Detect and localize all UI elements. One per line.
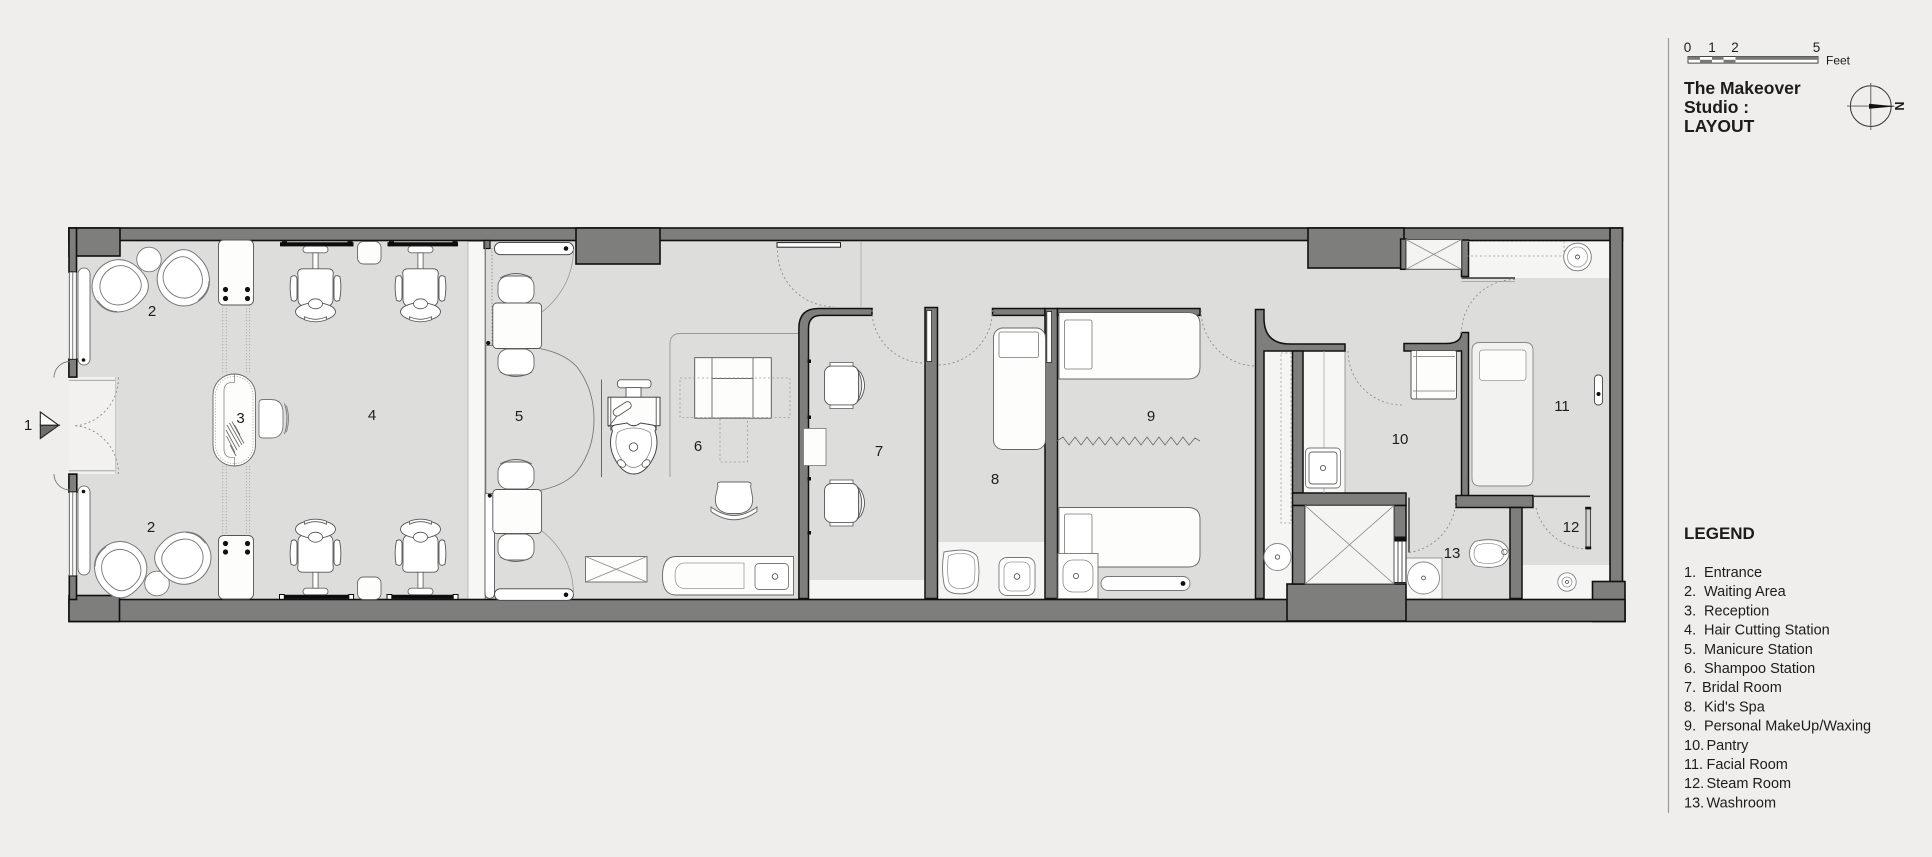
svg-text:1: 1: [1708, 40, 1716, 55]
svg-text:2: 2: [147, 519, 155, 536]
svg-text:Steam Room: Steam Room: [1707, 776, 1792, 792]
svg-text:Facial Room: Facial Room: [1707, 757, 1788, 773]
svg-text:0: 0: [1684, 40, 1692, 55]
svg-text:1: 1: [24, 417, 32, 434]
svg-text:N: N: [1892, 101, 1906, 110]
svg-text:9.: 9.: [1684, 719, 1696, 735]
svg-text:Bridal Room: Bridal Room: [1702, 680, 1782, 696]
svg-text:5: 5: [515, 408, 523, 425]
svg-text:12: 12: [1563, 519, 1580, 536]
svg-text:2: 2: [1731, 40, 1739, 55]
svg-text:13: 13: [1444, 545, 1461, 562]
svg-text:3: 3: [236, 410, 244, 427]
svg-text:Shampoo Station: Shampoo Station: [1704, 661, 1815, 677]
svg-text:Studio :: Studio :: [1684, 97, 1749, 117]
svg-text:Hair Cutting Station: Hair Cutting Station: [1704, 623, 1830, 639]
svg-text:Personal MakeUp/Waxing: Personal MakeUp/Waxing: [1704, 719, 1871, 735]
svg-text:9: 9: [1147, 408, 1155, 425]
svg-text:6.: 6.: [1684, 661, 1696, 677]
svg-text:Entrance: Entrance: [1704, 565, 1762, 581]
svg-text:11.: 11.: [1684, 757, 1703, 773]
svg-text:4.: 4.: [1684, 623, 1696, 639]
svg-text:4: 4: [368, 407, 376, 424]
svg-text:2.: 2.: [1684, 584, 1696, 600]
svg-text:6: 6: [694, 438, 702, 455]
svg-text:5: 5: [1813, 40, 1821, 55]
svg-text:13.: 13.: [1684, 795, 1704, 811]
svg-text:Reception: Reception: [1704, 603, 1769, 619]
svg-text:The Makeover: The Makeover: [1684, 78, 1801, 98]
svg-text:Pantry: Pantry: [1707, 738, 1750, 754]
svg-text:11: 11: [1554, 398, 1570, 415]
svg-text:2: 2: [148, 303, 156, 320]
svg-text:Waiting Area: Waiting Area: [1704, 584, 1787, 600]
svg-text:Manicure Station: Manicure Station: [1704, 642, 1813, 658]
svg-text:LAYOUT: LAYOUT: [1684, 116, 1755, 136]
svg-text:7: 7: [875, 443, 883, 460]
svg-text:3.: 3.: [1684, 603, 1696, 619]
svg-text:10.: 10.: [1684, 738, 1704, 754]
svg-text:10: 10: [1392, 431, 1409, 448]
svg-text:12.: 12.: [1684, 776, 1704, 792]
svg-text:8.: 8.: [1684, 699, 1696, 715]
svg-text:Kid's Spa: Kid's Spa: [1704, 699, 1766, 715]
svg-text:8: 8: [991, 471, 999, 488]
svg-text:Feet: Feet: [1826, 54, 1851, 68]
svg-text:1.: 1.: [1684, 565, 1696, 581]
svg-text:Washroom: Washroom: [1707, 795, 1777, 811]
svg-text:5.: 5.: [1684, 642, 1696, 658]
svg-text:LEGEND: LEGEND: [1684, 524, 1755, 543]
svg-text:7.: 7.: [1684, 680, 1696, 696]
